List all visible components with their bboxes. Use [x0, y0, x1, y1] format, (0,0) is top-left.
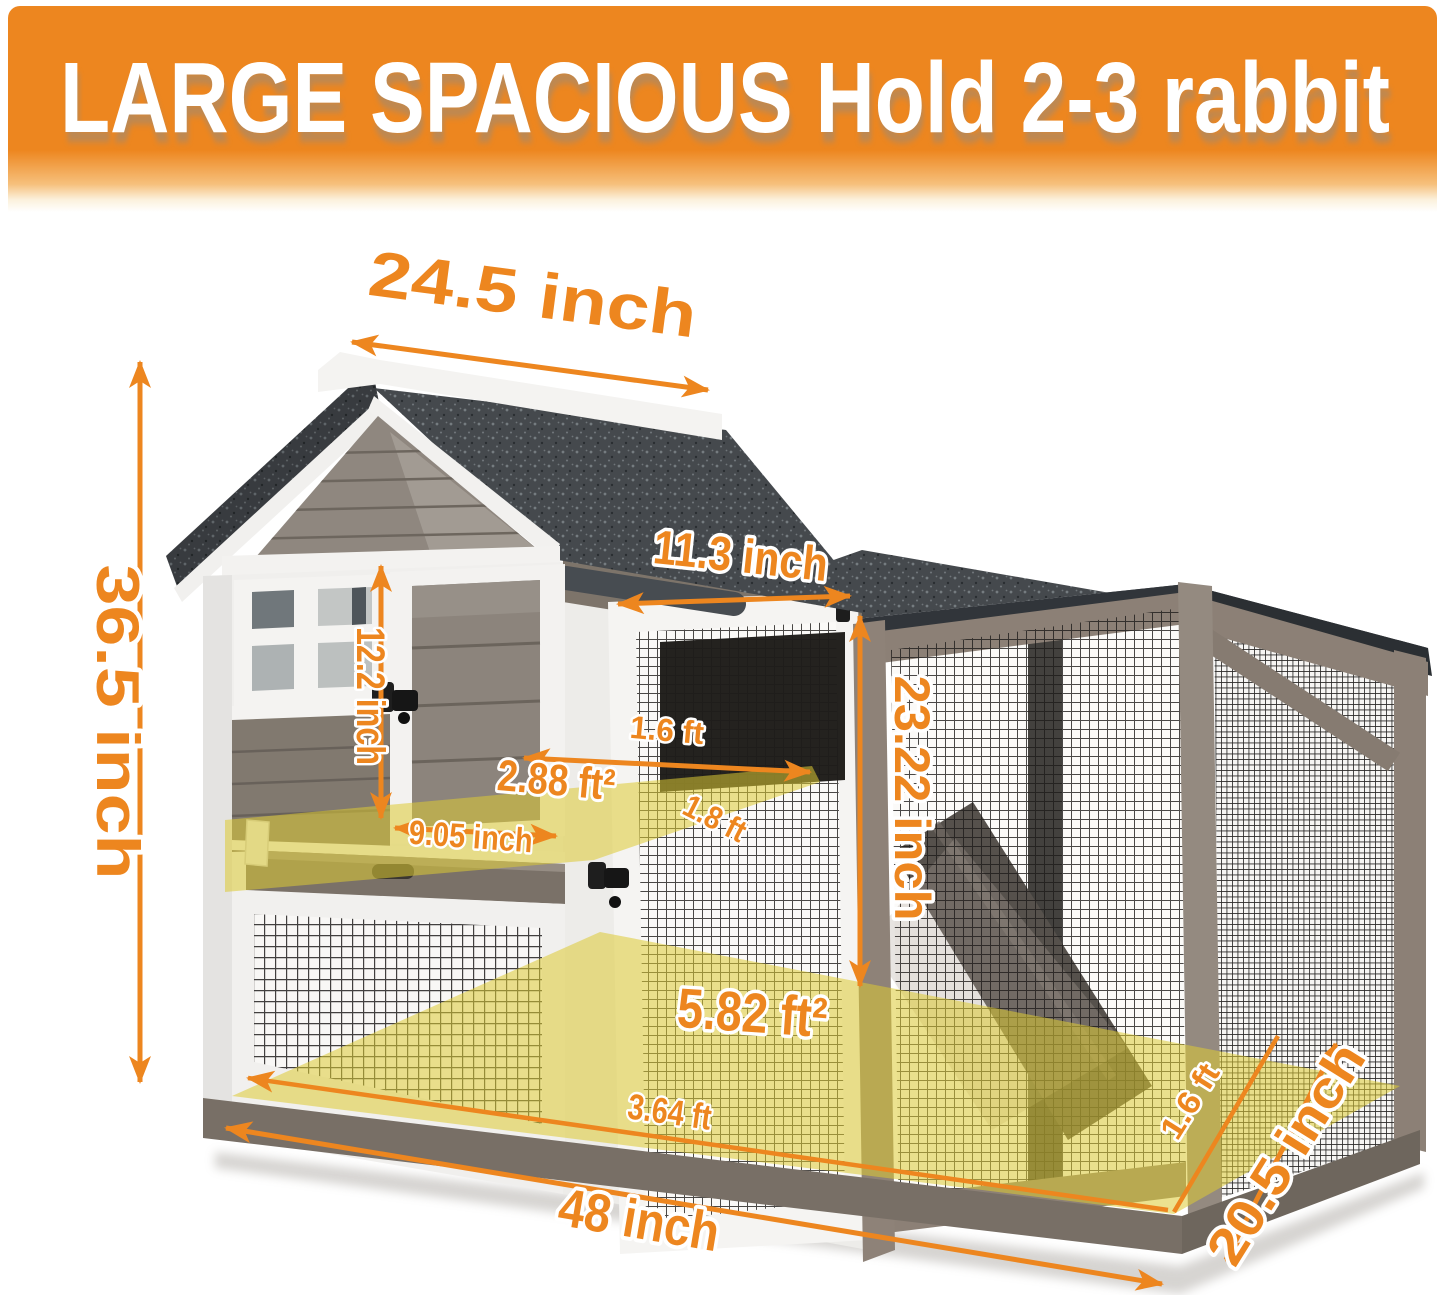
hutch-illustration — [166, 352, 1432, 1294]
hutch-dimensions-figure: LARGE SPACIOUS Hold 2-3 rabbit LARGE SPA… — [0, 0, 1445, 1295]
dim-run-height-label: 23.22 inch — [884, 676, 940, 921]
window-pane-tl — [252, 590, 294, 629]
hutch-door-panel-top — [412, 580, 540, 618]
dim-roof-width-label: 24.5 inch — [365, 237, 702, 351]
dim-platform-area-label: 2.88 ft² — [495, 751, 617, 810]
banner-title: LARGE SPACIOUS Hold 2-3 rabbit — [60, 43, 1390, 155]
run-rear-post — [1394, 650, 1426, 1152]
banner: LARGE SPACIOUS Hold 2-3 rabbit LARGE SPA… — [8, 6, 1437, 212]
dim-door-height-label: 12.2 inch — [348, 627, 392, 765]
dim-total-height: 36.5 inch — [84, 362, 151, 1082]
window-pane-bl — [252, 644, 294, 691]
dim-floor-area-label: 5.82 ft² — [675, 976, 829, 1049]
product-infographic: LARGE SPACIOUS Hold 2-3 rabbit LARGE SPA… — [0, 0, 1445, 1295]
dim-platform-depth-label: 1.6 ft — [629, 709, 706, 751]
window-pane-tr-reflection — [352, 587, 366, 625]
dim-total-height-label: 36.5 inch — [84, 565, 151, 880]
